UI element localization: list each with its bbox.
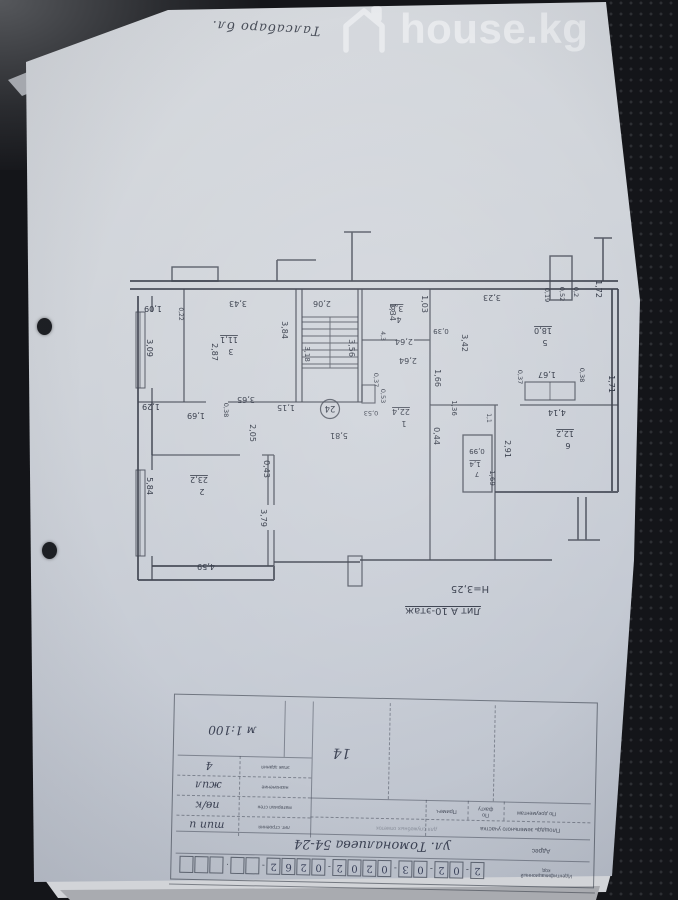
id-code-box: 2 <box>296 858 310 875</box>
dimension-label: 22,4 <box>392 407 410 416</box>
dimension-label: 18,0 <box>534 326 552 335</box>
id-code-box <box>230 857 244 874</box>
floor-plan-walls <box>130 232 618 586</box>
id-code-box: 2 <box>332 859 346 876</box>
hole-punch <box>42 542 57 559</box>
id-code-box: 0 <box>377 860 391 877</box>
dimension-label: 1,66 <box>433 369 442 387</box>
dimension-label: 0,22 <box>177 307 184 321</box>
id-code-box: 2 <box>470 862 484 879</box>
dimension-label: 1,71 <box>607 375 616 393</box>
stamp-row-value: пв/к <box>178 796 236 815</box>
dimension-label: 1,03 <box>420 295 429 313</box>
house-icon <box>338 4 390 54</box>
dimension-label: 0,43 <box>262 460 271 478</box>
watermark-brand: house.kg <box>400 8 588 50</box>
dimension-label: 0,37 <box>516 370 524 384</box>
dimension-label: 4,14 <box>548 408 566 417</box>
dimension-label: 3,84 <box>280 321 289 339</box>
dimension-label: 0,39 <box>433 327 449 335</box>
id-code-box: 2 <box>266 858 280 875</box>
stamp-row-label: материал стен <box>240 797 308 816</box>
dimension-label: 3,65 <box>237 395 255 404</box>
dimension-label: 2,91 <box>503 440 512 458</box>
dimension-label: 5,84 <box>145 477 154 495</box>
dimension-label: 0,38 <box>222 403 230 417</box>
dimension-label: 1,69 <box>187 411 205 420</box>
dimension-label: 3 <box>228 347 233 356</box>
dimension-label: 2,64 <box>399 356 417 365</box>
id-code-box <box>194 856 208 873</box>
id-code-box: 6 <box>281 858 295 875</box>
id-code-box: 2 <box>362 860 376 877</box>
note-col-header: Примеч. <box>427 801 465 819</box>
dimension-label: 0,53 <box>364 409 378 417</box>
id-code-box: 0 <box>347 859 361 876</box>
dimension-label: 1,09 <box>144 304 162 313</box>
dimension-label: 1 <box>401 419 406 428</box>
stamp-row-label: назначение <box>241 777 309 796</box>
dimension-label: 11,1 <box>220 335 238 344</box>
address-label: Адрес <box>521 841 561 859</box>
number-cell: 14 <box>319 736 364 769</box>
dimension-label: 1,72 <box>594 280 603 298</box>
ceiling-height-note: Н=3,25 <box>451 583 489 594</box>
id-code-box: 0 <box>449 861 463 878</box>
id-code-box: 0 <box>311 858 325 875</box>
id-code-box: 0 <box>413 861 427 878</box>
dimension-label: 3,79 <box>259 509 268 527</box>
dimension-label: 1,29 <box>142 402 160 411</box>
dimension-label: 1,67 <box>538 370 556 379</box>
docs-col-header: По документам <box>505 803 567 821</box>
dimension-label: 3,42 <box>460 334 469 352</box>
table-line <box>284 701 286 757</box>
id-code-label: Идентификационный код <box>504 862 588 882</box>
dimension-label: 2,06 <box>313 299 331 308</box>
id-code-boxes: ·-2620-2020-30-20-2 <box>179 856 485 879</box>
site-watermark: house.kg <box>338 4 588 54</box>
dimension-label: 0,99 <box>469 447 485 455</box>
stamp-row-value: жил <box>179 776 237 795</box>
dimension-label: 0,44 <box>432 427 441 445</box>
dimension-label: 6 <box>565 441 570 450</box>
stamp-row-value: 4 <box>179 756 237 775</box>
dimension-label: 3,23 <box>483 293 501 302</box>
building-litera-note: Лит А 10-этаж <box>405 605 481 616</box>
dimension-label: 3,8 <box>391 304 404 313</box>
floor-plan-labels: 1,720,20,520,193,232,061,031,343,841,090… <box>142 280 616 571</box>
dimension-label: 1,36 <box>450 400 458 416</box>
dimension-label: 2,87 <box>210 343 219 361</box>
scale-cell: м 1:100 <box>182 709 283 751</box>
dimension-label: 4 <box>396 315 401 324</box>
dimension-label: 3,56 <box>347 339 356 357</box>
dimension-label: 0,52 <box>558 287 566 301</box>
dimension-label: 0,2 <box>572 287 580 297</box>
dimension-label: 0,37 <box>372 373 380 387</box>
dimension-label: 3,43 <box>229 299 247 308</box>
dimension-label: 7 <box>475 470 479 478</box>
table-line <box>493 705 496 801</box>
id-code-box: 3 <box>398 860 412 877</box>
dimension-label: 3,18 <box>303 346 311 362</box>
dimension-label: 0,19 <box>543 288 551 302</box>
dimension-label: 1,1 <box>485 413 492 423</box>
dimension-label: 2 <box>199 487 204 496</box>
dimension-label: 12,2 <box>556 429 574 438</box>
dimension-label: 5 <box>542 338 547 347</box>
dimension-label: 4,59 <box>197 562 215 571</box>
id-code-box <box>179 856 193 873</box>
dimension-label: 23,2 <box>190 475 208 484</box>
fact-col-header: По факту <box>469 802 501 820</box>
dimension-label: 2,05 <box>248 424 257 442</box>
id-code-box: 2 <box>434 861 448 878</box>
table-line <box>388 703 391 799</box>
dimension-label: 4,3 <box>379 331 386 341</box>
dimension-label: 1,69 <box>488 470 496 486</box>
id-code-box <box>209 856 223 873</box>
photo-of-floorplan-document: { "watermark": { "brand": "house.kg", "i… <box>0 0 678 900</box>
number-value: 14 <box>333 745 351 760</box>
dimension-label: 0,38 <box>578 368 586 382</box>
hole-punch <box>37 318 52 335</box>
id-code-box <box>245 857 259 874</box>
dimension-label: 2,64 <box>395 337 413 346</box>
dimension-label: 1,4 <box>469 460 481 468</box>
scale-value: м 1:100 <box>208 723 257 737</box>
stamp-row-label: этаж здания <box>241 757 309 776</box>
apartment-number: 24 <box>325 403 336 413</box>
dimension-label: 0,53 <box>379 389 387 403</box>
dimension-label: 5,81 <box>330 431 348 440</box>
dimension-label: 3,09 <box>145 339 154 357</box>
registry-stamp-table: м 1:100 14 4этаж зданияжилназначениепв/к… <box>170 694 598 889</box>
dimension-label: 1,15 <box>277 403 295 412</box>
